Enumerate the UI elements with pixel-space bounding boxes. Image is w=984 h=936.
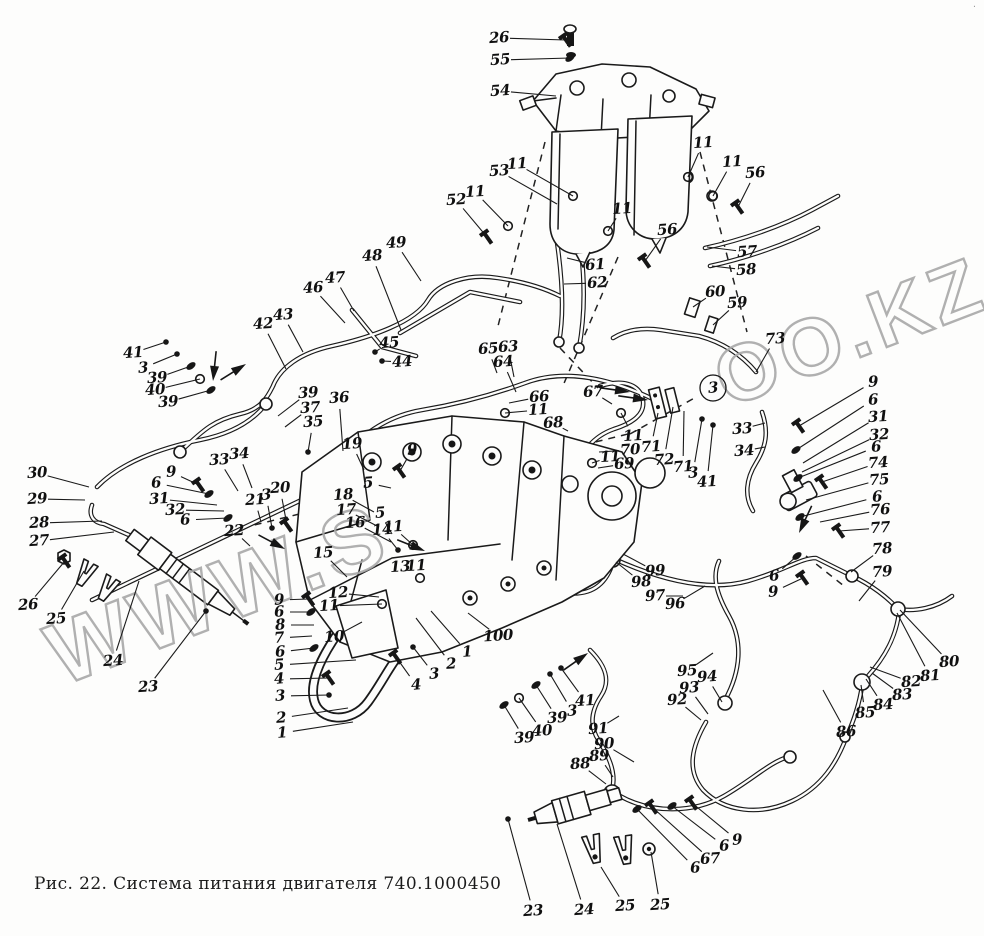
- direction-arrow: [231, 364, 246, 376]
- part-callout-95: 95: [677, 663, 698, 679]
- part-callout-41: 41: [697, 474, 718, 490]
- part-callout-25: 25: [46, 611, 67, 627]
- part-callout-77: 77: [870, 520, 891, 536]
- part-callout-1: 1: [462, 644, 473, 660]
- part-callout-43: 43: [273, 307, 294, 323]
- part-callout-24: 24: [103, 653, 124, 669]
- part-callout-33: 33: [732, 421, 753, 437]
- part-callout-75: 75: [869, 472, 890, 488]
- part-callout-22: 22: [224, 523, 245, 539]
- part-callout-1: 1: [277, 725, 288, 741]
- part-callout-56: 56: [657, 222, 678, 238]
- part-callout-9: 9: [407, 442, 418, 458]
- part-callout-97: 97: [645, 588, 666, 604]
- part-callout-2: 2: [446, 656, 457, 672]
- part-callout-11: 11: [406, 558, 427, 574]
- part-callout-35: 35: [303, 414, 324, 430]
- part-callout-15: 15: [313, 545, 334, 561]
- direction-arrow: [210, 366, 219, 381]
- part-callout-42: 42: [253, 316, 274, 332]
- part-callout-49: 49: [386, 235, 407, 251]
- part-callout-25: 25: [650, 897, 671, 913]
- part-callout-26: 26: [489, 30, 510, 46]
- part-callout-11: 11: [693, 135, 714, 151]
- part-callout-68: 68: [543, 415, 564, 431]
- part-callout-11: 11: [722, 154, 743, 170]
- part-callout-67: 67: [583, 384, 604, 400]
- part-callout-41: 41: [575, 693, 596, 709]
- part-callout-11: 11: [612, 201, 633, 217]
- part-callout-84: 84: [873, 697, 894, 713]
- part-callout-33: 33: [209, 452, 230, 468]
- part-callout-67: 67: [700, 851, 721, 867]
- part-callout-23: 23: [523, 903, 544, 919]
- part-callout-3: 3: [708, 380, 719, 396]
- part-callout-48: 48: [362, 248, 383, 264]
- part-callout-88: 88: [570, 756, 591, 772]
- part-callout-39: 39: [514, 730, 535, 746]
- part-callout-3: 3: [567, 703, 578, 719]
- part-callout-5: 5: [363, 475, 374, 491]
- part-callout-56: 56: [745, 165, 766, 181]
- part-callout-40: 40: [532, 723, 553, 739]
- part-callout-46: 46: [303, 280, 324, 296]
- part-callout-28: 28: [29, 515, 50, 531]
- part-callout-29: 29: [27, 491, 48, 507]
- part-callout-31: 31: [868, 409, 889, 425]
- part-callout-6: 6: [180, 512, 191, 528]
- part-callout-34: 34: [229, 446, 250, 462]
- part-callout-11: 11: [383, 519, 404, 535]
- part-callout-3: 3: [275, 688, 286, 704]
- direction-arrow: [633, 393, 648, 402]
- part-callout-10: 10: [324, 629, 345, 645]
- part-callout-54: 54: [490, 83, 511, 99]
- part-callout-4: 4: [274, 671, 285, 687]
- part-callout-47: 47: [325, 270, 346, 286]
- part-callout-64: 64: [493, 354, 514, 370]
- part-callout-3: 3: [429, 666, 440, 682]
- part-callout-73: 73: [765, 331, 786, 347]
- part-callout-55: 55: [490, 52, 511, 68]
- part-callout-83: 83: [892, 687, 913, 703]
- part-callout-9: 9: [166, 464, 177, 480]
- part-callout-62: 62: [587, 275, 608, 291]
- part-callout-9: 9: [768, 584, 779, 600]
- callout-leader-layer: [0, 0, 984, 936]
- part-callout-78: 78: [872, 541, 893, 557]
- part-callout-11: 11: [319, 598, 340, 614]
- part-callout-74: 74: [868, 455, 889, 471]
- figure-caption: Рис. 22. Система питания двигателя 740.1…: [34, 874, 501, 894]
- part-callout-6: 6: [690, 860, 701, 876]
- direction-arrow: [573, 653, 588, 665]
- part-callout-27: 27: [29, 533, 50, 549]
- part-callout-34: 34: [734, 443, 755, 459]
- part-callout-61: 61: [585, 257, 606, 273]
- part-callout-58: 58: [736, 262, 757, 278]
- corner-mark: ·: [973, 2, 976, 13]
- part-callout-59: 59: [727, 295, 748, 311]
- part-callout-79: 79: [872, 564, 893, 580]
- part-callout-19: 19: [342, 436, 363, 452]
- part-callout-11: 11: [465, 184, 486, 200]
- direction-arrow: [615, 385, 630, 394]
- part-callout-9: 9: [732, 832, 743, 848]
- part-callout-16: 16: [345, 515, 366, 531]
- part-callout-39: 39: [158, 394, 179, 410]
- part-callout-9: 9: [868, 374, 879, 390]
- part-callout-36: 36: [329, 390, 350, 406]
- part-callout-52: 52: [446, 192, 467, 208]
- part-callout-44: 44: [392, 354, 413, 370]
- parts-diagram: WWW.S OO.KZ 2655545311521149484746454443…: [0, 0, 984, 936]
- part-callout-25: 25: [615, 898, 636, 914]
- part-callout-92: 92: [667, 692, 688, 708]
- part-callout-23: 23: [138, 679, 159, 695]
- part-callout-20: 20: [270, 480, 291, 496]
- part-callout-6: 6: [868, 392, 879, 408]
- part-callout-81: 81: [920, 668, 941, 684]
- part-callout-60: 60: [705, 284, 726, 300]
- part-callout-85: 85: [855, 705, 876, 721]
- direction-arrow: [270, 538, 285, 549]
- part-callout-4: 4: [411, 677, 422, 693]
- part-callout-89: 89: [589, 748, 610, 764]
- part-callout-96: 96: [665, 596, 686, 612]
- part-callout-11: 11: [507, 156, 528, 172]
- part-callout-45: 45: [379, 335, 400, 351]
- part-callout-6: 6: [719, 838, 730, 854]
- part-callout-76: 76: [870, 502, 891, 518]
- part-callout-80: 80: [939, 654, 960, 670]
- part-callout-100: 100: [483, 627, 514, 644]
- part-callout-69: 69: [614, 456, 635, 472]
- part-callout-86: 86: [836, 724, 857, 740]
- part-callout-72: 72: [654, 452, 675, 468]
- part-callout-30: 30: [27, 465, 48, 481]
- part-callout-26: 26: [18, 597, 39, 613]
- part-callout-57: 57: [737, 244, 758, 260]
- part-callout-24: 24: [574, 902, 595, 918]
- part-callout-94: 94: [697, 669, 718, 685]
